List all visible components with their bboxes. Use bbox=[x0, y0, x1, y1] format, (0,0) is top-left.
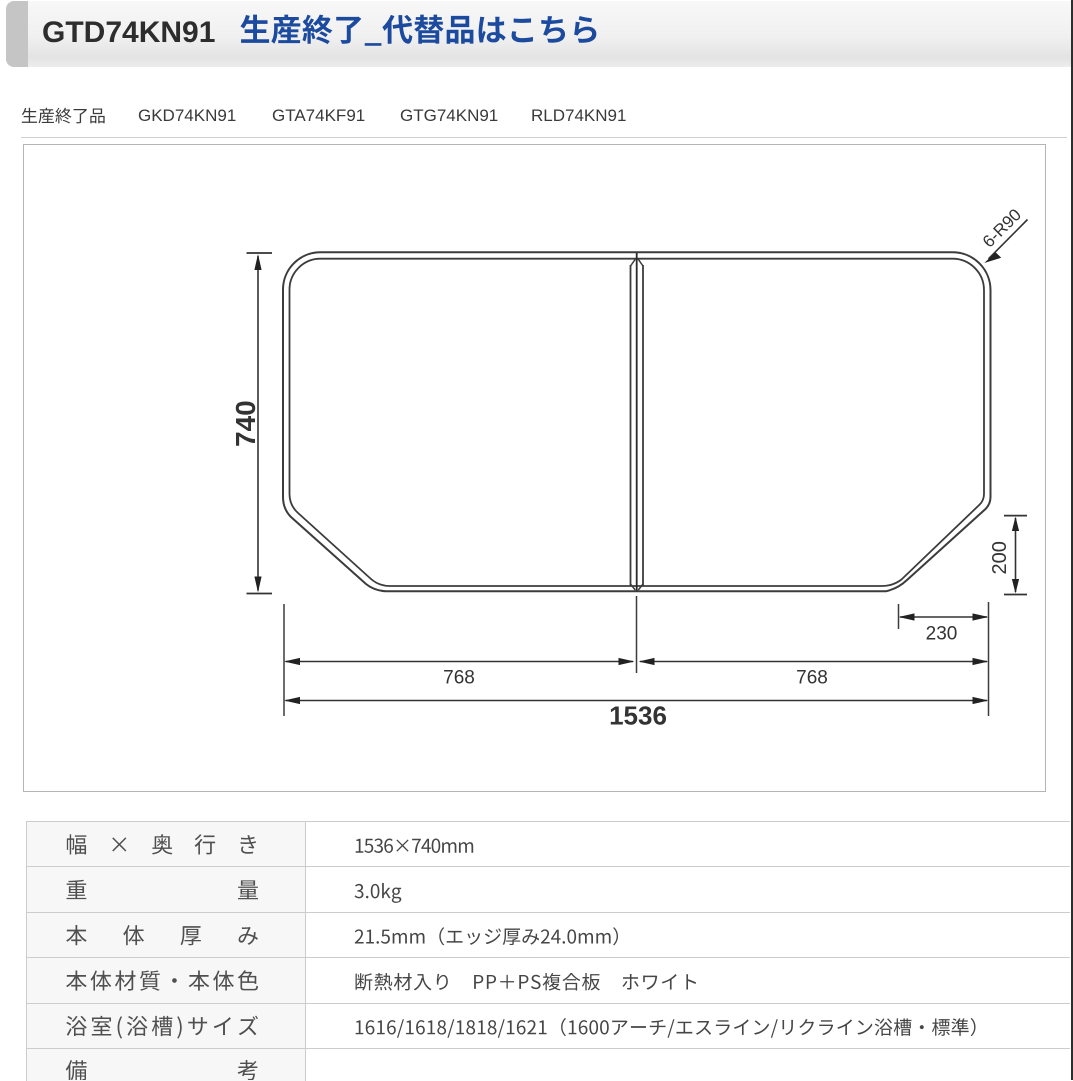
svg-text:1536: 1536 bbox=[609, 701, 667, 731]
svg-text:768: 768 bbox=[443, 668, 475, 689]
svg-text:740: 740 bbox=[230, 400, 261, 447]
svg-text:768: 768 bbox=[796, 668, 828, 689]
svg-text:230: 230 bbox=[926, 624, 958, 645]
svg-text:200: 200 bbox=[989, 541, 1011, 574]
